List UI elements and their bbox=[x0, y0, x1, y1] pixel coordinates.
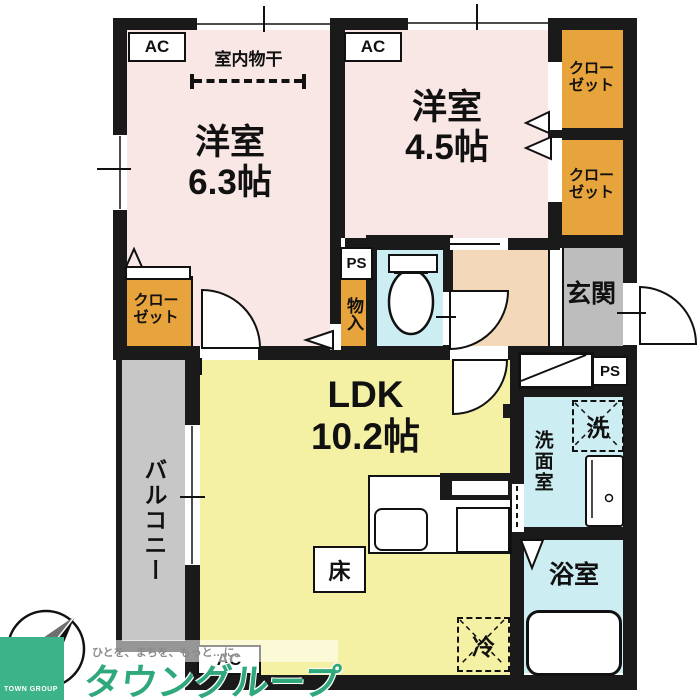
closet-line: ゼット bbox=[569, 185, 614, 202]
pipe-space-1: PS bbox=[340, 247, 373, 280]
window-top-bedroom63 bbox=[197, 18, 330, 30]
door-gap-toilet bbox=[443, 292, 453, 345]
ac-unit-bedroom63: AC bbox=[128, 32, 186, 62]
shoe-cabinet bbox=[518, 352, 594, 389]
washroom-label: 洗面室 bbox=[528, 415, 556, 507]
room-name: バルコニー bbox=[140, 458, 166, 583]
indoor-drying-label: 室内物干 bbox=[196, 48, 301, 72]
room-name: 浴室 bbox=[549, 561, 599, 589]
floor-plan: AC AC AC PS PS 床 洗 冷 bbox=[0, 0, 700, 700]
bedroom-63-label: 洋室 6.3帖 bbox=[140, 110, 320, 215]
closet-3-label: クロー ゼット bbox=[123, 280, 189, 340]
ps-label: PS bbox=[346, 255, 366, 272]
balcony-label: バルコニー bbox=[139, 408, 167, 633]
door-entrance bbox=[640, 287, 696, 344]
floor-hatch: 床 bbox=[313, 546, 366, 593]
floor-label: 床 bbox=[328, 554, 350, 586]
kitchen-pass-through bbox=[452, 481, 508, 495]
logo-brand-text: タウングループ bbox=[81, 652, 343, 700]
wall-between-bedrooms bbox=[330, 18, 345, 238]
fixture-name: 室内物干 bbox=[215, 50, 283, 69]
door-gap-bedroom63 bbox=[200, 346, 258, 360]
window-balcony-ldk bbox=[185, 425, 200, 565]
door-gap-washroom bbox=[510, 484, 524, 532]
washer-space: 洗 bbox=[572, 400, 624, 452]
window-left-bedroom63 bbox=[113, 135, 127, 210]
room-size: 4.5帖 bbox=[405, 128, 489, 167]
bathroom-label: 浴室 bbox=[538, 557, 610, 593]
hall-floor bbox=[453, 248, 548, 348]
logo-company-text: TOWN GROUP bbox=[4, 686, 58, 693]
closet-line: クロー bbox=[569, 61, 614, 78]
toilet-tank bbox=[388, 254, 438, 273]
washer-label: 洗 bbox=[587, 409, 610, 443]
entrance-label: 玄関 bbox=[558, 276, 624, 312]
room-name: 玄関 bbox=[566, 280, 616, 308]
balcony-edge-left bbox=[116, 352, 122, 648]
ps-label: PS bbox=[600, 363, 620, 380]
closet-2-label: クロー ゼット bbox=[560, 155, 623, 215]
door-gap-ldk-hall bbox=[450, 346, 508, 360]
door-gap-bedroom45 bbox=[450, 238, 508, 250]
vanity-sink bbox=[585, 455, 624, 527]
room-size: 10.2帖 bbox=[311, 416, 420, 457]
window-top-bedroom45 bbox=[408, 18, 548, 30]
wall-bath-divider bbox=[510, 527, 637, 540]
closet-line: クロー bbox=[133, 293, 178, 310]
kitchen-sink bbox=[374, 508, 428, 551]
room-name: 洋室 bbox=[412, 88, 482, 127]
closet-line: ゼット bbox=[569, 78, 614, 95]
fridge-space: 冷 bbox=[457, 617, 510, 672]
fridge-label: 冷 bbox=[472, 628, 495, 662]
room-name: LDK bbox=[327, 374, 403, 415]
door-gap-storage bbox=[330, 324, 341, 350]
kitchen-stove bbox=[456, 507, 510, 553]
storage-label: 物入 bbox=[341, 282, 366, 346]
closet-line: クロー bbox=[569, 168, 614, 185]
wall-closet-bottom bbox=[548, 235, 637, 248]
door-gap-closet3 bbox=[125, 266, 191, 280]
door-gap-entrance bbox=[623, 283, 637, 345]
ac-label: AC bbox=[361, 37, 386, 57]
closet-line: ゼット bbox=[133, 310, 178, 327]
ldk-label: LDK 10.2帖 bbox=[268, 368, 463, 463]
bathtub bbox=[526, 610, 622, 676]
room-size: 6.3帖 bbox=[188, 163, 272, 202]
room-name: 洗面室 bbox=[531, 430, 552, 493]
closet-1-label: クロー ゼット bbox=[560, 48, 623, 108]
indoor-drying-rail bbox=[190, 74, 306, 89]
bedroom-45-label: 洋室 4.5帖 bbox=[352, 75, 542, 180]
wall-toilet-top bbox=[366, 235, 453, 246]
room-name: 物入 bbox=[344, 297, 363, 331]
ac-unit-bedroom45: AC bbox=[344, 32, 402, 62]
room-name: 洋室 bbox=[195, 123, 265, 162]
pipe-space-2: PS bbox=[592, 356, 628, 386]
ldk-door-stub bbox=[503, 404, 521, 418]
ac-label: AC bbox=[145, 37, 170, 57]
